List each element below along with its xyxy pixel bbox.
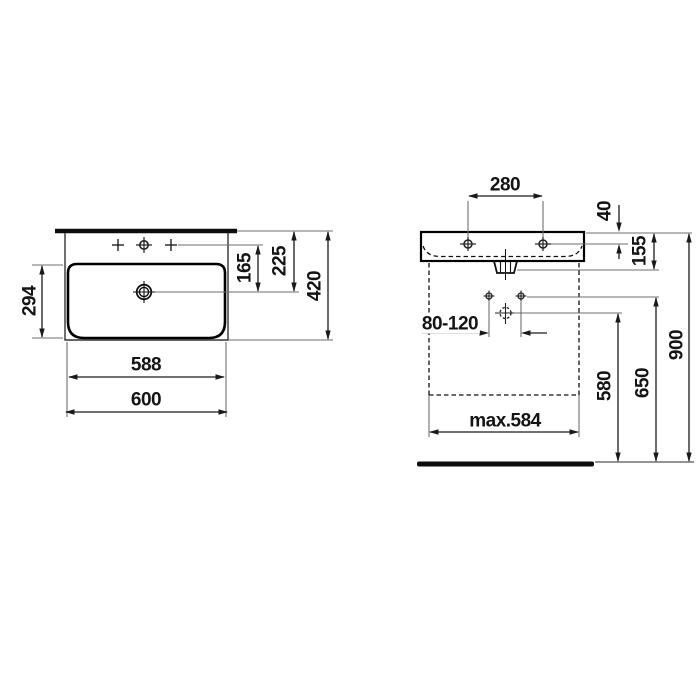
- tap-hole-front-left-icon: [460, 237, 476, 251]
- dim-label-580: 580: [596, 371, 615, 401]
- dim-label-80-120: 80-120: [420, 315, 480, 334]
- inner-bowl-outline: [68, 264, 225, 338]
- dim-label-40: 40: [596, 201, 615, 221]
- tap-hole-center-icon: [136, 237, 152, 253]
- dim-label-165: 165: [236, 253, 255, 283]
- washbasin-dimension-drawing: [0, 0, 700, 700]
- dim-label-max584: max.584: [467, 412, 543, 431]
- supply-connection-right-icon: [516, 291, 527, 302]
- dim-label-155: 155: [631, 236, 650, 266]
- dim-label-650: 650: [634, 368, 653, 398]
- tap-hole-left-icon: [112, 239, 124, 251]
- dim-label-900: 900: [668, 330, 687, 360]
- waste-pipe-icon: [495, 303, 514, 324]
- tap-hole-right-icon: [165, 239, 177, 251]
- floor-line-thick: [417, 462, 594, 467]
- drain-icon: [133, 281, 155, 303]
- dim-label-420: 420: [306, 271, 325, 301]
- drain-outlet-front: [494, 249, 517, 280]
- tap-hole-front-right-icon: [535, 237, 551, 251]
- dim-label-225: 225: [271, 246, 290, 276]
- dim-label-280: 280: [490, 176, 520, 195]
- dim-label-588: 588: [131, 356, 161, 375]
- supply-connection-left-icon: [484, 291, 495, 302]
- dim-label-294: 294: [21, 286, 40, 316]
- technical-drawing-canvas: 294 165 225 420 588 600 280 40 155 80-12…: [0, 0, 700, 700]
- inner-bowl-dashed-line: [423, 246, 582, 257]
- dim-label-600: 600: [131, 391, 161, 410]
